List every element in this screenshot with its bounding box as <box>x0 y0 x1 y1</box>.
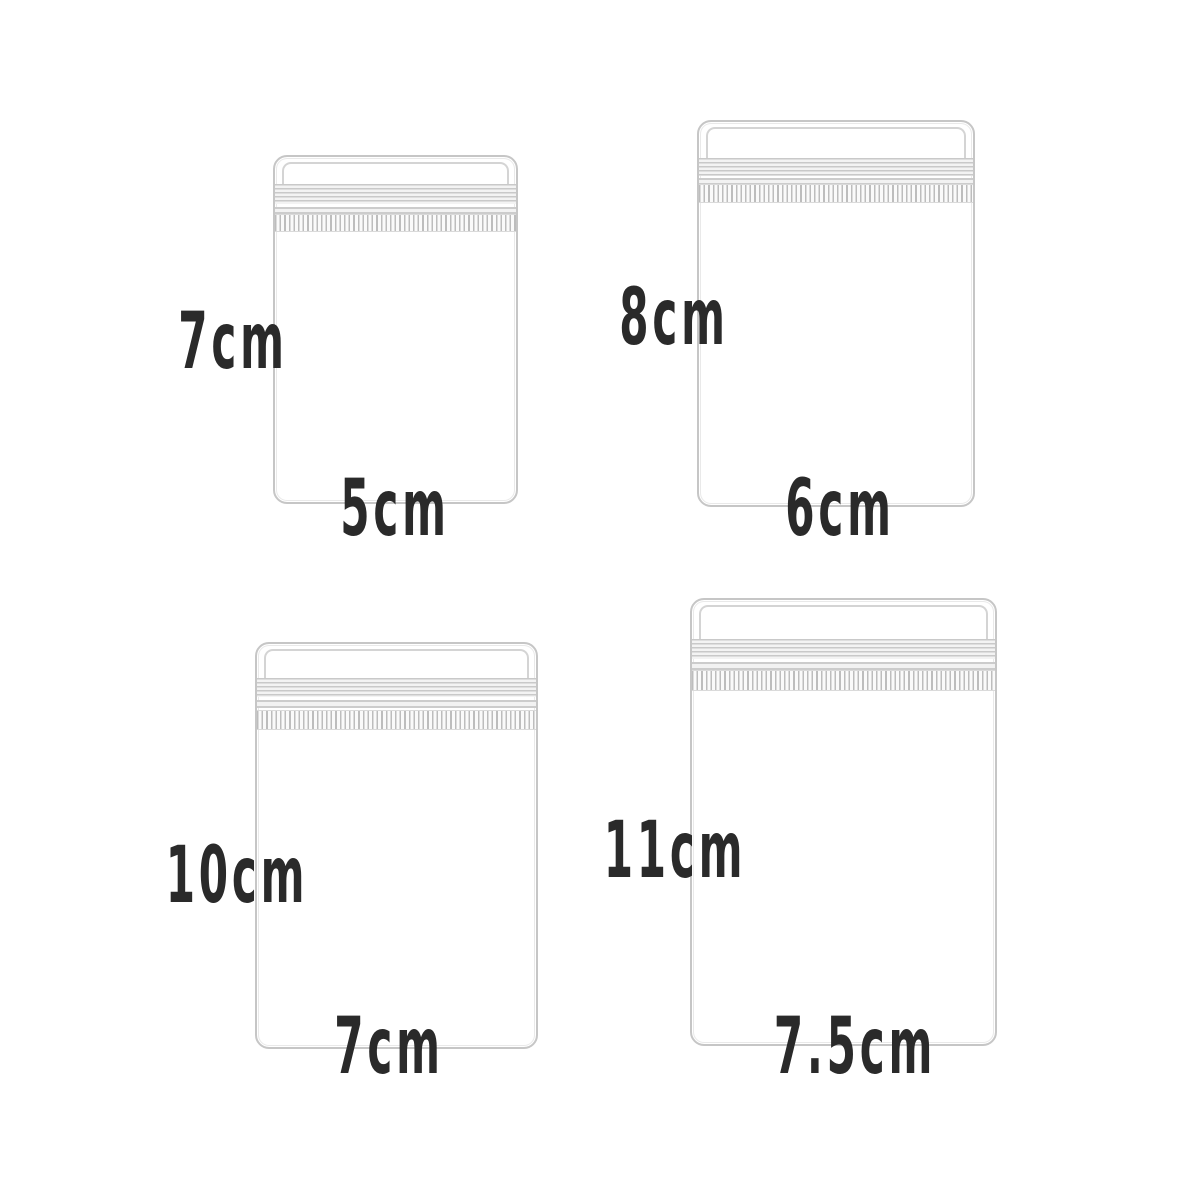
zipper-teeth-ribs <box>699 184 973 203</box>
zipper-seal-stripes <box>699 158 973 176</box>
product-size-diagram: 7cm 5cm 8cm 6cm 10cm 7cm 11cm 7.5cm <box>0 0 1200 1200</box>
ziplock-bag-6x8cm <box>697 120 975 507</box>
height-label-bag3: 10cm <box>166 837 309 915</box>
zipper-seal-line <box>257 700 536 708</box>
height-label-bag1: 7cm <box>178 303 288 381</box>
bag-top-lip <box>706 127 966 160</box>
height-label-bag2: 8cm <box>619 279 729 357</box>
zipper-teeth-ribs <box>275 214 516 232</box>
zipper-seal-stripes <box>257 678 536 697</box>
bag-top-lip <box>699 605 988 640</box>
width-label-bag1: 5cm <box>340 470 450 548</box>
zipper-seal-stripes <box>275 184 516 204</box>
width-label-bag4: 7.5cm <box>774 1008 936 1086</box>
width-label-bag3: 7cm <box>334 1008 444 1086</box>
zipper-seal-line <box>692 662 995 670</box>
zipper-teeth-ribs <box>692 670 995 691</box>
zipper-seal-line <box>275 207 516 214</box>
zipper-teeth-ribs <box>257 710 536 730</box>
ziplock-bag-5x7cm <box>273 155 518 504</box>
height-label-bag4: 11cm <box>604 812 747 890</box>
zipper-seal-stripes <box>692 639 995 659</box>
width-label-bag2: 6cm <box>785 470 895 548</box>
bag-top-lip <box>264 649 529 680</box>
